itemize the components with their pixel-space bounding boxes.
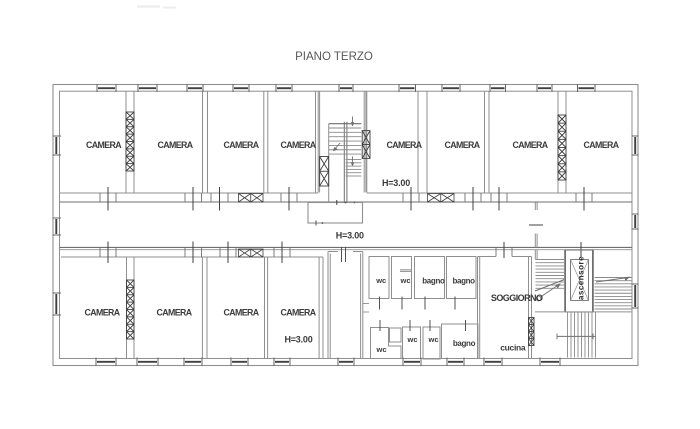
- svg-text:ascensore: ascensore: [577, 256, 586, 300]
- svg-text:CAMERA: CAMERA: [280, 140, 316, 150]
- svg-text:H=3.00: H=3.00: [382, 178, 410, 188]
- svg-text:H=3.00: H=3.00: [336, 231, 364, 241]
- svg-text:CAMERA: CAMERA: [583, 140, 619, 150]
- svg-text:CAMERA: CAMERA: [512, 140, 548, 150]
- svg-text:H=3.00: H=3.00: [284, 335, 312, 345]
- svg-text:SOGGIORNO: SOGGIORNO: [491, 293, 543, 303]
- svg-text:bagno: bagno: [422, 277, 445, 286]
- svg-text:wc: wc: [375, 276, 386, 285]
- svg-text:CAMERA: CAMERA: [84, 308, 120, 318]
- svg-text:CAMERA: CAMERA: [386, 140, 422, 150]
- svg-text:wc: wc: [375, 345, 386, 354]
- svg-text:CAMERA: CAMERA: [280, 308, 316, 318]
- svg-text:CAMERA: CAMERA: [86, 140, 122, 150]
- svg-text:CAMERA: CAMERA: [444, 140, 480, 150]
- svg-text:wc: wc: [427, 335, 438, 344]
- svg-text:wc: wc: [399, 276, 410, 285]
- svg-text:CAMERA: CAMERA: [156, 308, 192, 318]
- svg-text:cucina: cucina: [500, 343, 526, 353]
- svg-text:CAMERA: CAMERA: [223, 140, 259, 150]
- svg-text:wc: wc: [406, 335, 417, 344]
- svg-text:CAMERA: CAMERA: [223, 308, 259, 318]
- svg-text:PIANO TERZO: PIANO TERZO: [295, 51, 373, 63]
- svg-text:bagno: bagno: [452, 277, 475, 286]
- svg-text:CAMERA: CAMERA: [157, 140, 193, 150]
- svg-text:bagno: bagno: [453, 339, 476, 348]
